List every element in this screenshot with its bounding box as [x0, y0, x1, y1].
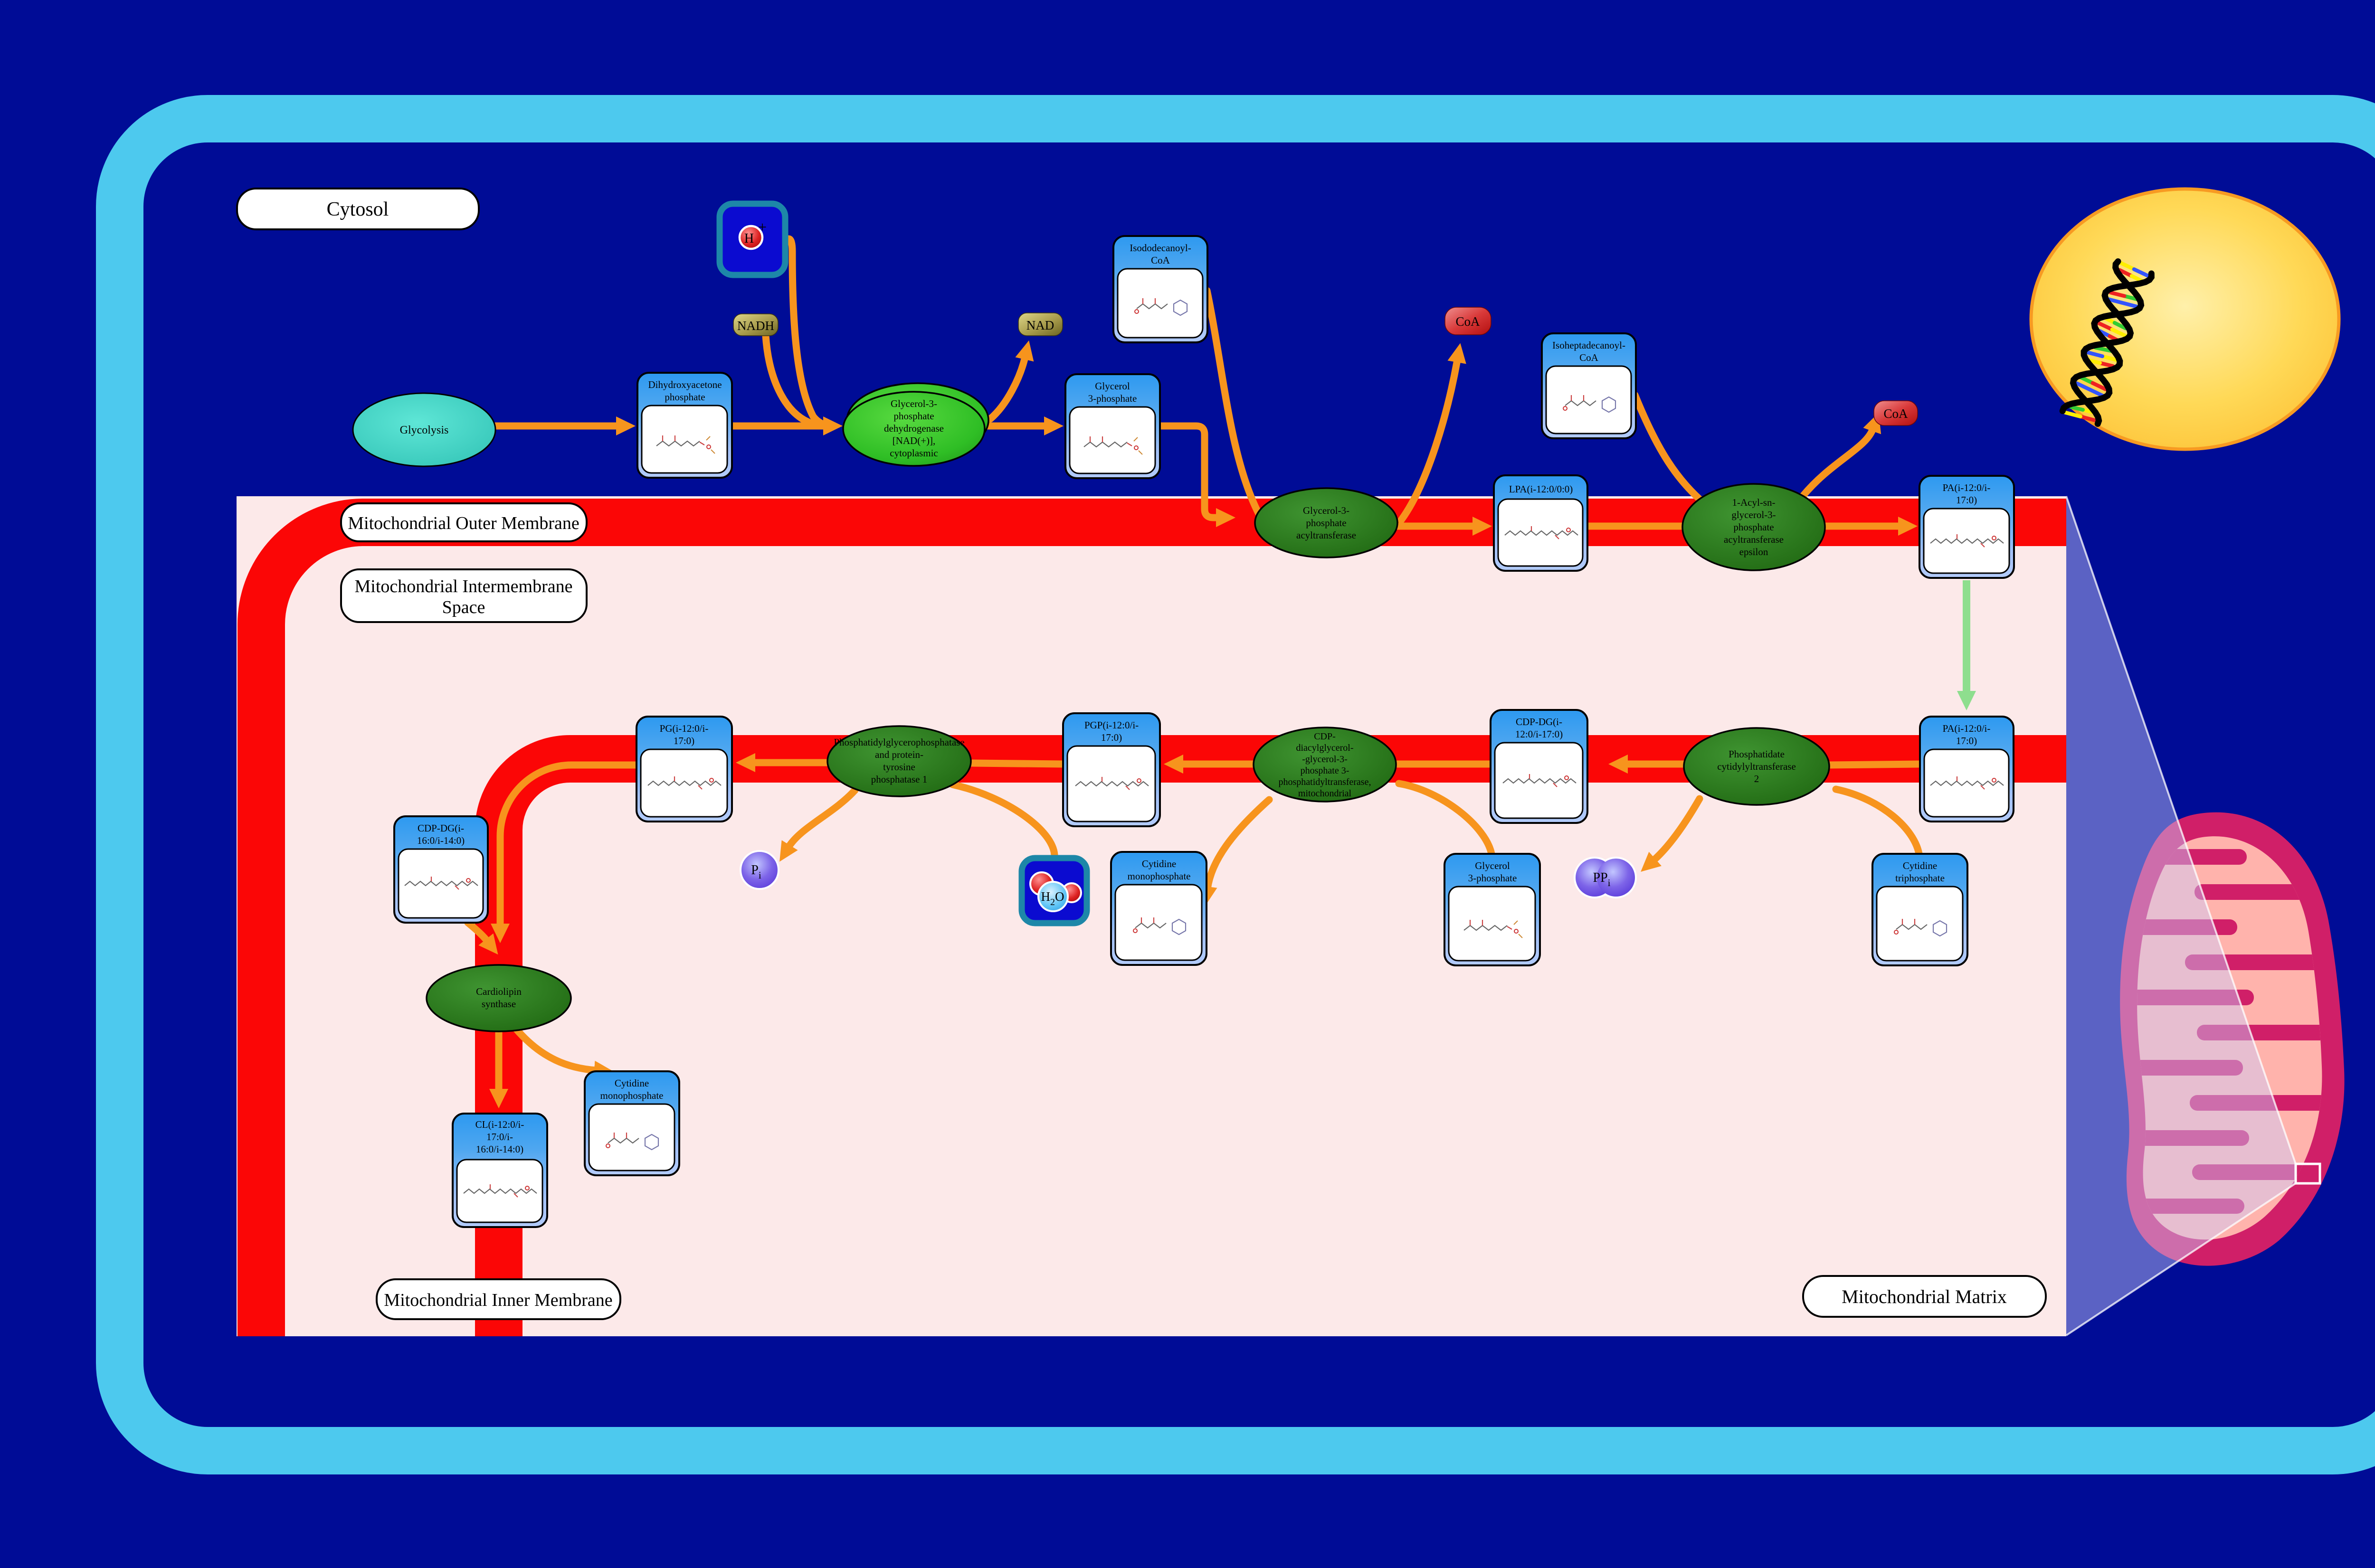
svg-text:17:0): 17:0): [1101, 732, 1122, 743]
svg-text:diacylglycerol-: diacylglycerol-: [1296, 743, 1353, 753]
svg-text:2: 2: [1754, 773, 1759, 784]
svg-text:phosphatase 1: phosphatase 1: [871, 774, 927, 785]
svg-text:phosphate: phosphate: [665, 391, 705, 403]
svg-text:triphosphate: triphosphate: [1895, 872, 1945, 884]
svg-text:Mitochondrial Inner Membrane: Mitochondrial Inner Membrane: [384, 1290, 612, 1310]
svg-text:phosphate: phosphate: [1306, 517, 1346, 529]
svg-text:phosphatidyltransferase,: phosphatidyltransferase,: [1279, 777, 1371, 787]
svg-text:16:0/i-14:0): 16:0/i-14:0): [417, 835, 465, 846]
svg-text:CDP-DG(i-: CDP-DG(i-: [1516, 716, 1562, 727]
svg-text:Cardiolipin: Cardiolipin: [476, 986, 522, 997]
svg-text:PA(i-12:0/i-: PA(i-12:0/i-: [1943, 482, 1991, 493]
svg-text:Glycerol-3-: Glycerol-3-: [1303, 505, 1349, 516]
svg-text:NADH: NADH: [737, 319, 774, 333]
svg-text:CDP-DG(i-: CDP-DG(i-: [418, 822, 464, 834]
svg-text:Glycolysis: Glycolysis: [400, 424, 449, 436]
svg-text:PA(i-12:0/i-: PA(i-12:0/i-: [1943, 723, 1991, 734]
svg-text:12:0/i-17:0): 12:0/i-17:0): [1515, 728, 1563, 740]
svg-text:Mitochondrial Intermembrane: Mitochondrial Intermembrane: [354, 576, 572, 596]
svg-text:3-phosphate: 3-phosphate: [1088, 393, 1137, 404]
svg-text:-glycerol-3-: -glycerol-3-: [1302, 754, 1348, 765]
svg-text:CoA: CoA: [1579, 352, 1599, 363]
svg-text:Phosphatidylglycerophosphatase: Phosphatidylglycerophosphatase: [834, 737, 964, 748]
svg-text:Space: Space: [442, 597, 485, 617]
svg-text:cytidylyltransferase: cytidylyltransferase: [1717, 761, 1796, 772]
svg-text:[NAD(+)],: [NAD(+)],: [893, 435, 936, 446]
svg-text:Isoheptadecanoyl-: Isoheptadecanoyl-: [1552, 340, 1625, 351]
svg-text:Glycerol-3-: Glycerol-3-: [891, 398, 937, 409]
svg-text:17:0/i-: 17:0/i-: [486, 1131, 513, 1143]
svg-text:synthase: synthase: [482, 998, 516, 1010]
svg-text:17:0): 17:0): [1956, 494, 1977, 506]
svg-text:16:0/i-14:0): 16:0/i-14:0): [476, 1143, 523, 1155]
svg-text:glycerol-3-: glycerol-3-: [1731, 509, 1776, 520]
svg-text:CoA: CoA: [1455, 314, 1480, 329]
svg-text:Dihydroxyacetone: Dihydroxyacetone: [648, 379, 722, 390]
svg-text:H: H: [744, 231, 754, 246]
svg-text:PG(i-12:0/i-: PG(i-12:0/i-: [660, 723, 709, 734]
svg-text:monophosphate: monophosphate: [1128, 870, 1191, 882]
svg-text:dehydrogenase: dehydrogenase: [884, 423, 944, 434]
svg-text:Cytidine: Cytidine: [1142, 858, 1176, 869]
svg-text:Mitochondrial Outer Membrane: Mitochondrial Outer Membrane: [348, 513, 579, 533]
svg-text:CoA: CoA: [1151, 255, 1170, 266]
svg-text:phosphate: phosphate: [1733, 521, 1774, 533]
svg-text:17:0): 17:0): [674, 735, 694, 746]
svg-text:tyrosine: tyrosine: [883, 761, 915, 773]
svg-text:and protein-: and protein-: [875, 749, 923, 760]
svg-text:NAD: NAD: [1026, 318, 1054, 332]
svg-text:Glycerol: Glycerol: [1095, 380, 1130, 392]
svg-text:Cytosol: Cytosol: [327, 198, 389, 220]
svg-text:phosphate: phosphate: [893, 410, 934, 422]
svg-text:cytoplasmic: cytoplasmic: [890, 447, 938, 459]
svg-text:Phosphatidate: Phosphatidate: [1729, 748, 1785, 760]
svg-text:Mitochondrial Matrix: Mitochondrial Matrix: [1842, 1286, 2007, 1307]
svg-text:monophosphate: monophosphate: [600, 1090, 664, 1101]
svg-text:1-Acyl-sn-: 1-Acyl-sn-: [1732, 497, 1776, 508]
svg-text:Cytidine: Cytidine: [1903, 860, 1937, 871]
svg-text:phosphate 3-: phosphate 3-: [1301, 765, 1349, 776]
svg-text:CDP-: CDP-: [1314, 731, 1336, 742]
svg-text:17:0): 17:0): [1956, 735, 1977, 746]
svg-text:+: +: [758, 218, 767, 236]
svg-text:acyltransferase: acyltransferase: [1724, 534, 1784, 545]
svg-text:PGP(i-12:0/i-: PGP(i-12:0/i-: [1084, 719, 1139, 731]
svg-text:3-phosphate: 3-phosphate: [1468, 872, 1517, 884]
svg-text:CoA: CoA: [1883, 406, 1908, 421]
svg-text:Cytidine: Cytidine: [615, 1077, 649, 1089]
svg-text:CL(i-12:0/i-: CL(i-12:0/i-: [475, 1119, 524, 1130]
svg-text:Isododecanoyl-: Isododecanoyl-: [1130, 242, 1191, 254]
svg-text:LPA(i-12:0/0:0): LPA(i-12:0/0:0): [1509, 483, 1573, 495]
svg-text:acyltransferase: acyltransferase: [1296, 529, 1356, 541]
svg-text:Glycerol: Glycerol: [1475, 860, 1510, 871]
svg-text:mitochondrial: mitochondrial: [1298, 788, 1352, 799]
svg-text:epsilon: epsilon: [1739, 546, 1768, 557]
